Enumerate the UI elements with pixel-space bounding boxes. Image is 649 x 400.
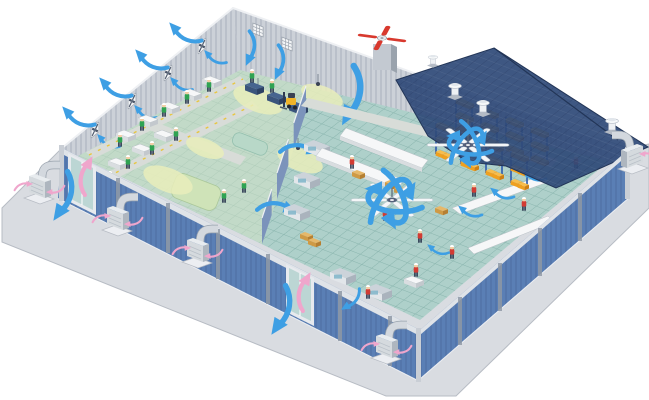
corner-post [59,145,64,201]
corner-post [416,328,421,382]
factory-illustration-stage: Isometric cutaway illustration of a fact… [0,0,649,400]
factory-cutaway-illustration: Isometric cutaway illustration of a fact… [0,0,649,400]
